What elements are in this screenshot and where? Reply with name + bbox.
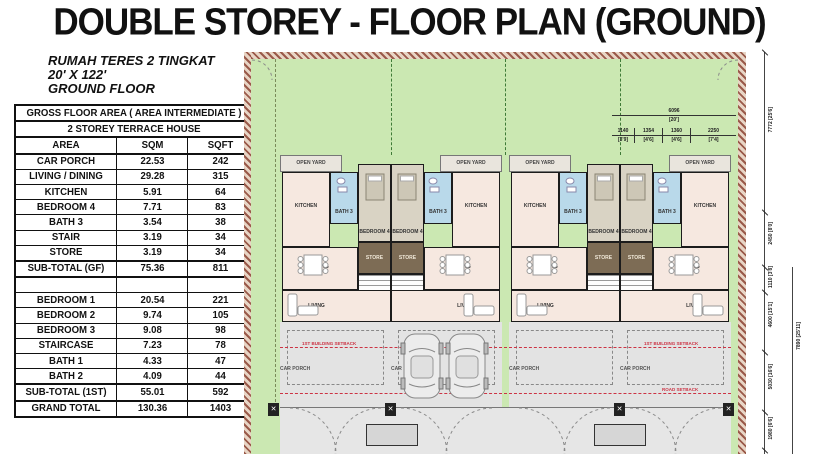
page-title: DOUBLE STOREY - FLOOR PLAN (GROUND) <box>0 1 819 44</box>
dimension-total-width: 6096 [20'] <box>612 108 736 123</box>
room-bath3: BATH 3 <box>653 172 681 224</box>
room-store: STORE <box>620 242 653 274</box>
open-yard: OPEN YARD <box>669 155 731 172</box>
room-kitchen: KITCHEN <box>681 172 729 247</box>
room-living: LIVING <box>511 290 620 322</box>
house-unit-4: OPEN YARD KITCHEN BATH 3 BEDROOM 4 DININ… <box>620 152 731 412</box>
room-bedroom4: BEDROOM 4 <box>358 164 391 242</box>
room-bath3: BATH 3 <box>424 172 452 224</box>
car-porch: CAR PORCH <box>620 322 731 407</box>
subtotal-gf-row: SUB-TOTAL (GF) 75.36 811 <box>15 261 253 277</box>
gate-post: ✕ <box>268 403 279 416</box>
dimension-overall-line <box>792 267 793 454</box>
open-yard: OPEN YARD <box>280 155 342 172</box>
table-row: LIVING / DINING 29.28 315 <box>15 169 253 184</box>
table-row: KITCHEN 5.91 64 <box>15 184 253 199</box>
plan-subtitle: RUMAH TERES 2 TINGKAT 20' X 122' GROUND … <box>48 54 215 96</box>
table-title: GROSS FLOOR AREA ( AREA INTERMEDIATE ) <box>20 105 248 121</box>
table-subtitle: 2 STOREY TERRACE HOUSE <box>20 121 248 137</box>
road-setback-line <box>280 393 731 394</box>
table-row: BATH 3 3.54 38 <box>15 215 253 230</box>
room-store: STORE <box>587 242 620 274</box>
front-apron <box>280 407 731 454</box>
grand-total-row: GRAND TOTAL 130.36 1403 <box>15 401 253 417</box>
room-kitchen: KITCHEN <box>452 172 500 247</box>
room-bath3: BATH 3 <box>559 172 587 224</box>
table-row: BEDROOM 3 9.08 98 <box>15 323 253 338</box>
subtitle-line-2: 20' X 122' <box>48 68 215 82</box>
dimension-segments: 1140[3'9] 1354[4'6] 1360[4'6] 2250[7'4] <box>612 128 736 143</box>
table-row: BATH 2 4.09 44 <box>15 369 253 385</box>
car-porch-label: CAR PORCH <box>391 366 502 372</box>
boundary-right <box>738 52 746 454</box>
room-store: STORE <box>358 242 391 274</box>
car-porch: CAR PORCH <box>509 322 620 407</box>
setback-label: 1ST BUILDING SETBACK <box>302 341 356 346</box>
room-store: STORE <box>391 242 424 274</box>
subtitle-line-3: GROUND FLOOR <box>48 82 215 96</box>
setback-label: 1ST BUILDING SETBACK <box>644 341 698 346</box>
car-porch-label: CAR PORCH <box>620 366 731 372</box>
room-living: LIVING <box>282 290 391 322</box>
setback-label: ROAD SETBACK <box>662 387 698 392</box>
car-porch-label: CAR PORCH <box>280 366 391 372</box>
table-row: BEDROOM 2 9.74 105 <box>15 308 253 323</box>
car-porch: CAR PORCH <box>280 322 391 407</box>
building-setback-line <box>280 347 731 348</box>
gate-post: ✕ <box>614 403 625 416</box>
room-bedroom4: BEDROOM 4 <box>620 164 653 242</box>
gross-floor-area-table: GROSS FLOOR AREA ( AREA INTERMEDIATE ) 2… <box>14 104 254 418</box>
porch-roof-outline <box>627 330 724 385</box>
room-bath3: BATH 3 <box>330 172 358 224</box>
table-title-row: GROSS FLOOR AREA ( AREA INTERMEDIATE ) <box>15 105 253 121</box>
room-bedroom4: BEDROOM 4 <box>391 164 424 242</box>
table-row: CAR PORCH 22.53 242 <box>15 154 253 170</box>
col-header-sqft: SQFT <box>189 137 252 153</box>
lot-line <box>391 59 392 155</box>
room-dining: DINING <box>511 247 587 290</box>
meter-box <box>594 424 646 446</box>
table-subtitle-row: 2 STOREY TERRACE HOUSE <box>15 121 253 137</box>
porch-roof-outline <box>287 330 384 385</box>
room-bedroom4: BEDROOM 4 <box>587 164 620 242</box>
dim-overall-label: 7890 [25'11] <box>796 322 802 350</box>
dim-label: 7772 [25'6] <box>768 107 774 132</box>
front-fence-line <box>280 407 731 408</box>
room-dining: DINING <box>653 247 729 290</box>
boundary-left <box>244 52 251 454</box>
subtotal-1st-row: SUB-TOTAL (1ST) 55.01 592 <box>15 384 253 400</box>
table-row: BEDROOM 4 7.71 83 <box>15 200 253 215</box>
house-unit-1: OPEN YARD KITCHEN BATH 3 BEDROOM 4 DININ… <box>280 152 391 412</box>
table-row: BEDROOM 1 20.54 221 <box>15 293 253 308</box>
meter-box <box>366 424 418 446</box>
car-porch: CAR PORCH <box>391 322 502 407</box>
room-kitchen: KITCHEN <box>282 172 330 247</box>
dim-label: 4600 [15'1] <box>768 302 774 327</box>
gate-post: ✕ <box>385 403 396 416</box>
dim-label: 2450 [8'0] <box>768 222 774 245</box>
floor-plan-drawing: OPEN YARD KITCHEN BATH 3 BEDROOM 4 DININ… <box>244 52 746 454</box>
table-row: STAIR 3.19 34 <box>15 230 253 245</box>
table-row: BATH 1 4.33 47 <box>15 354 253 369</box>
dim-label: 1980 [6'6] <box>768 417 774 440</box>
porch-roof-outline <box>398 330 495 385</box>
right-dimension-strip: 7772 [25'6] 2450 [8'0] 1110 [3'8] 4600 [… <box>746 52 819 454</box>
gate-post: ✕ <box>723 403 734 416</box>
porch-roof-outline <box>516 330 613 385</box>
lot-line <box>505 59 506 155</box>
open-yard: OPEN YARD <box>509 155 571 172</box>
col-header-sqm: SQM <box>118 137 186 153</box>
room-living: LIVING <box>620 290 729 322</box>
house-unit-3: OPEN YARD KITCHEN BATH 3 BEDROOM 4 DININ… <box>509 152 620 412</box>
house-unit-2: OPEN YARD KITCHEN BATH 3 BEDROOM 4 DININ… <box>391 152 502 412</box>
dimension-chain-line <box>764 52 765 454</box>
table-row: STORE 3.19 34 <box>15 245 253 261</box>
dimension-line <box>612 115 736 116</box>
room-dining: DINING <box>424 247 500 290</box>
drain-reserve-line <box>275 59 276 407</box>
col-header-area: AREA <box>17 137 114 153</box>
room-kitchen: KITCHEN <box>511 172 559 247</box>
dim-label: 1110 [3'8] <box>768 266 774 288</box>
dim-label: 5030 [16'6] <box>768 364 774 389</box>
table-row: STAIRCASE 7.23 78 <box>15 338 253 353</box>
boundary-top <box>244 52 746 59</box>
room-dining: DINING <box>282 247 358 290</box>
car-porch-label: CAR PORCH <box>509 366 620 372</box>
subtitle-line-1: RUMAH TERES 2 TINGKAT <box>48 54 215 68</box>
table-header-row: AREA SQM SQFT <box>15 137 253 153</box>
open-yard: OPEN YARD <box>440 155 502 172</box>
spacer-row <box>15 277 253 293</box>
